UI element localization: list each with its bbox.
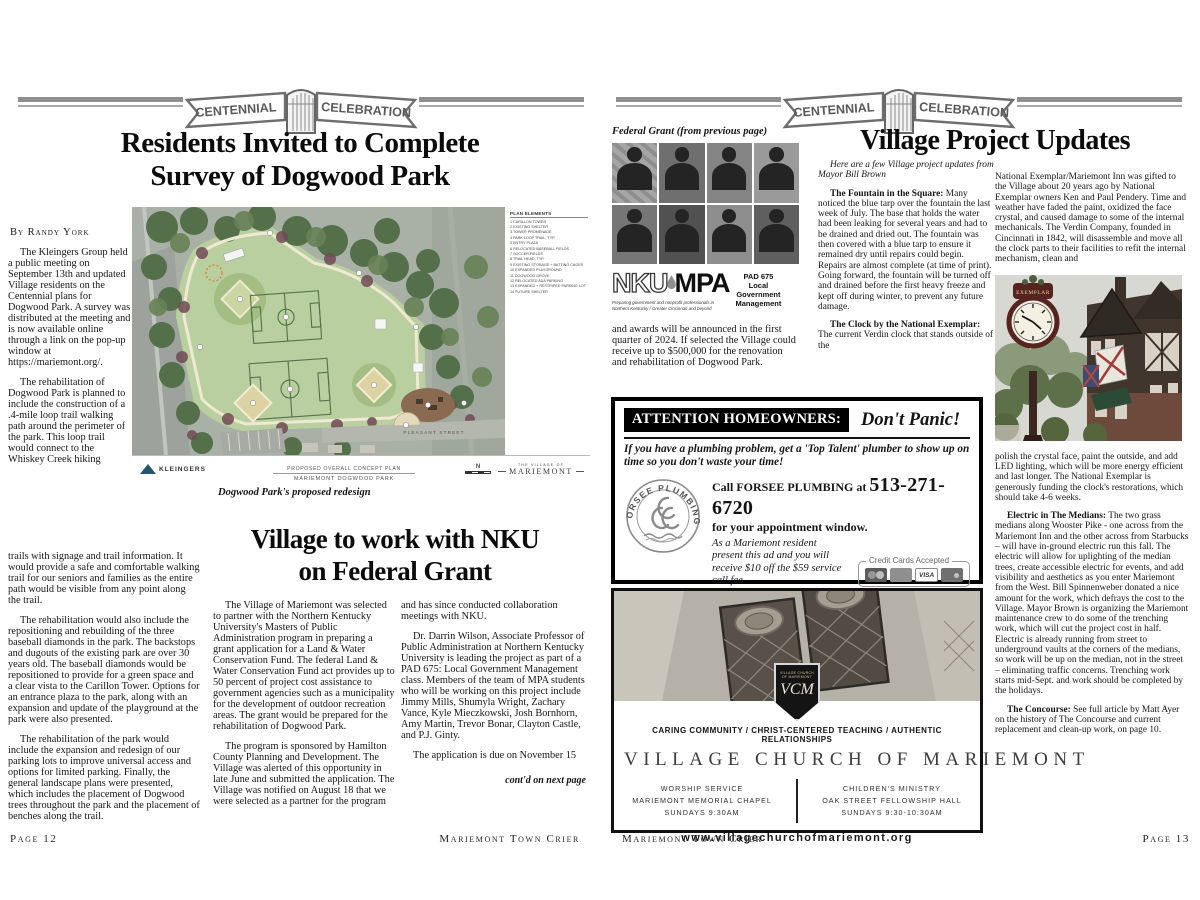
newspaper-spread: CENTENNIAL CELEBRATION Residents Invited… — [0, 0, 1200, 900]
vcm-monogram: VCM — [776, 681, 818, 699]
portrait-photo — [754, 205, 799, 265]
worship-service-info: WORSHIP SERVICEMARIEMONT MEMORIAL CHAPEL… — [624, 783, 780, 820]
nku-mpa-logo-row: NKUMPA Preparing government and nonprofi… — [612, 268, 799, 311]
updates-column-mid: Here are a few Village project updates f… — [818, 160, 994, 359]
byline: By Randy York — [10, 227, 90, 238]
article-column-narrow: The Kleingers Group held a public meetin… — [8, 247, 132, 474]
childrens-ministry-info: CHILDREN'S MINISTRYOAK STREET FELLOWSHIP… — [814, 783, 970, 820]
nku-article-col1: The Village of Mariemont was selected to… — [213, 600, 396, 816]
visa-icon: VISA — [915, 568, 937, 582]
ad-call-line: Call FORSEE PLUMBING at — [712, 480, 866, 494]
plan-legend-items: 1 CARILLON TOWER2 EXISTING SHELTER3 TOWE… — [510, 220, 588, 296]
portrait-photo — [612, 143, 657, 203]
mpa-students-photo-collage — [612, 143, 799, 264]
plan-legend: PLAN ELEMENTS 1 CARILLON TOWER2 EXISTING… — [510, 211, 588, 295]
flame-icon — [667, 275, 676, 290]
mastercard-icon — [865, 568, 887, 582]
page-number-right: Page 13 — [1000, 833, 1190, 845]
portrait-photo — [612, 205, 657, 265]
clock-update-lead: The Clock by the National Exemplar: The … — [818, 320, 994, 351]
ad-dont-panic: Don't Panic! — [861, 410, 960, 431]
ad-pitch-line: If you have a plumbing problem, get a 'T… — [624, 443, 970, 469]
amex-icon — [890, 568, 912, 582]
updates-intro: Here are a few Village project updates f… — [818, 160, 994, 181]
portrait-photo — [754, 143, 799, 203]
north-arrow-scale: N — [458, 464, 498, 474]
exemplar-clock-photo: EXEMPLAR — [995, 275, 1182, 441]
plan-title-band: KLEINGERS PROPOSED OVERALL CONCEPT PLAN … — [132, 455, 590, 482]
portrait-photo — [659, 143, 704, 203]
plan-legend-title: PLAN ELEMENTS — [510, 211, 588, 218]
banner-rule-right — [1017, 97, 1182, 107]
church-tagline: CARING COMMUNITY / CHRIST-CENTERED TEACH… — [624, 726, 970, 744]
ad-offer-text: As a Mariemont resident present this ad … — [712, 538, 850, 587]
church-name: VILLAGE CHURCH OF MARIEMONT — [624, 749, 970, 771]
village-church-ad: VILLAGE CHURCH OF MARIEMONT VCM CARING C… — [611, 588, 983, 833]
paragraph: and awards will be announced in the firs… — [612, 324, 799, 368]
divider — [796, 779, 798, 823]
publication-name-left: Mariemont Town Crier — [380, 833, 580, 845]
kleingers-logo: KLEINGERS — [140, 464, 230, 474]
paragraph: The rehabilitation of the park would inc… — [8, 734, 200, 822]
street-label: PLEASANT STREET — [403, 430, 464, 435]
page-title-right: Village Project Updates — [800, 124, 1190, 157]
kleingers-mark-icon — [140, 464, 156, 474]
paragraph: The application is due on November 15 — [401, 750, 586, 761]
concourse-update: The Concourse: See full article by Matt … — [995, 705, 1189, 736]
portrait-photo — [707, 205, 752, 265]
paragraph: The rehabilitation would also include th… — [8, 615, 200, 725]
paragraph: trails with signage and trail informatio… — [8, 551, 200, 606]
dogwood-park-plan-image: PLEASANT STREET PLAN ELEMENTS 1 CARILLON… — [132, 207, 590, 482]
article-column-wide: trails with signage and trail informatio… — [8, 551, 200, 831]
credit-cards-label: Credit Cards Accepted — [866, 556, 952, 565]
discover-icon — [941, 568, 963, 582]
paragraph: and has since conducted collaboration me… — [401, 600, 586, 622]
federal-grant-caption: Federal Grant (from previous page) — [612, 126, 767, 137]
credit-cards-box: Credit Cards Accepted VISA — [858, 561, 970, 587]
ad-attention-header: ATTENTION HOMEOWNERS: — [624, 408, 849, 432]
nku-article-col2: and has since conducted collaboration me… — [401, 600, 586, 786]
paragraph: polish the crystal face, paint the outsi… — [995, 452, 1189, 503]
plan-titles: PROPOSED OVERALL CONCEPT PLAN MARIEMONT … — [230, 457, 458, 482]
village-of-mariemont-logo: THE VILLAGE OF MARIEMONT — [498, 463, 584, 476]
banner-rule-right — [419, 97, 584, 107]
clock-header-label: EXEMPLAR — [1016, 290, 1050, 296]
paragraph: National Exemplar/Mariemont Inn was gift… — [995, 172, 1189, 265]
continued-notice: cont'd on next page — [401, 775, 586, 786]
electric-update: Electric in The Medians: The two grass m… — [995, 511, 1189, 696]
park-map-illustration: PLEASANT STREET — [132, 207, 505, 455]
paragraph: Dr. Darrin Wilson, Associate Professor o… — [401, 631, 586, 741]
portrait-photo — [707, 143, 752, 203]
page-title: Residents Invited to Complete Survey of … — [40, 127, 560, 193]
portrait-photo — [659, 205, 704, 265]
headline-line1: Residents Invited to Complete — [40, 127, 560, 160]
headline-line2: Survey of Dogwood Park — [40, 160, 560, 193]
nku-mpa-logo: NKUMPA Preparing government and nonprofi… — [612, 268, 730, 311]
forsee-plumbing-logo: FORSEE PLUMBING — [624, 474, 702, 554]
grant-continuation: and awards will be announced in the firs… — [612, 324, 799, 377]
map-caption: Dogwood Park's proposed redesign — [218, 487, 371, 498]
nku-article-title: Village to work with NKU on Federal Gran… — [200, 523, 590, 587]
fountain-update: The Fountain in the Square: Many noticed… — [818, 189, 994, 313]
banner-rule-left — [616, 97, 781, 107]
ad-call-line2: for your appointment window. — [712, 520, 970, 535]
forsee-plumbing-ad: ATTENTION HOMEOWNERS: Don't Panic! If yo… — [611, 397, 983, 584]
pad-675-label: PAD 675LocalGovernmentManagement — [736, 272, 782, 308]
page-number-left: Page 12 — [10, 833, 58, 845]
updates-column-right: National Exemplar/Mariemont Inn was gift… — [995, 172, 1189, 743]
publication-name-right: Mariemont Town Crier — [622, 833, 763, 845]
banner-rule-left — [18, 97, 183, 107]
